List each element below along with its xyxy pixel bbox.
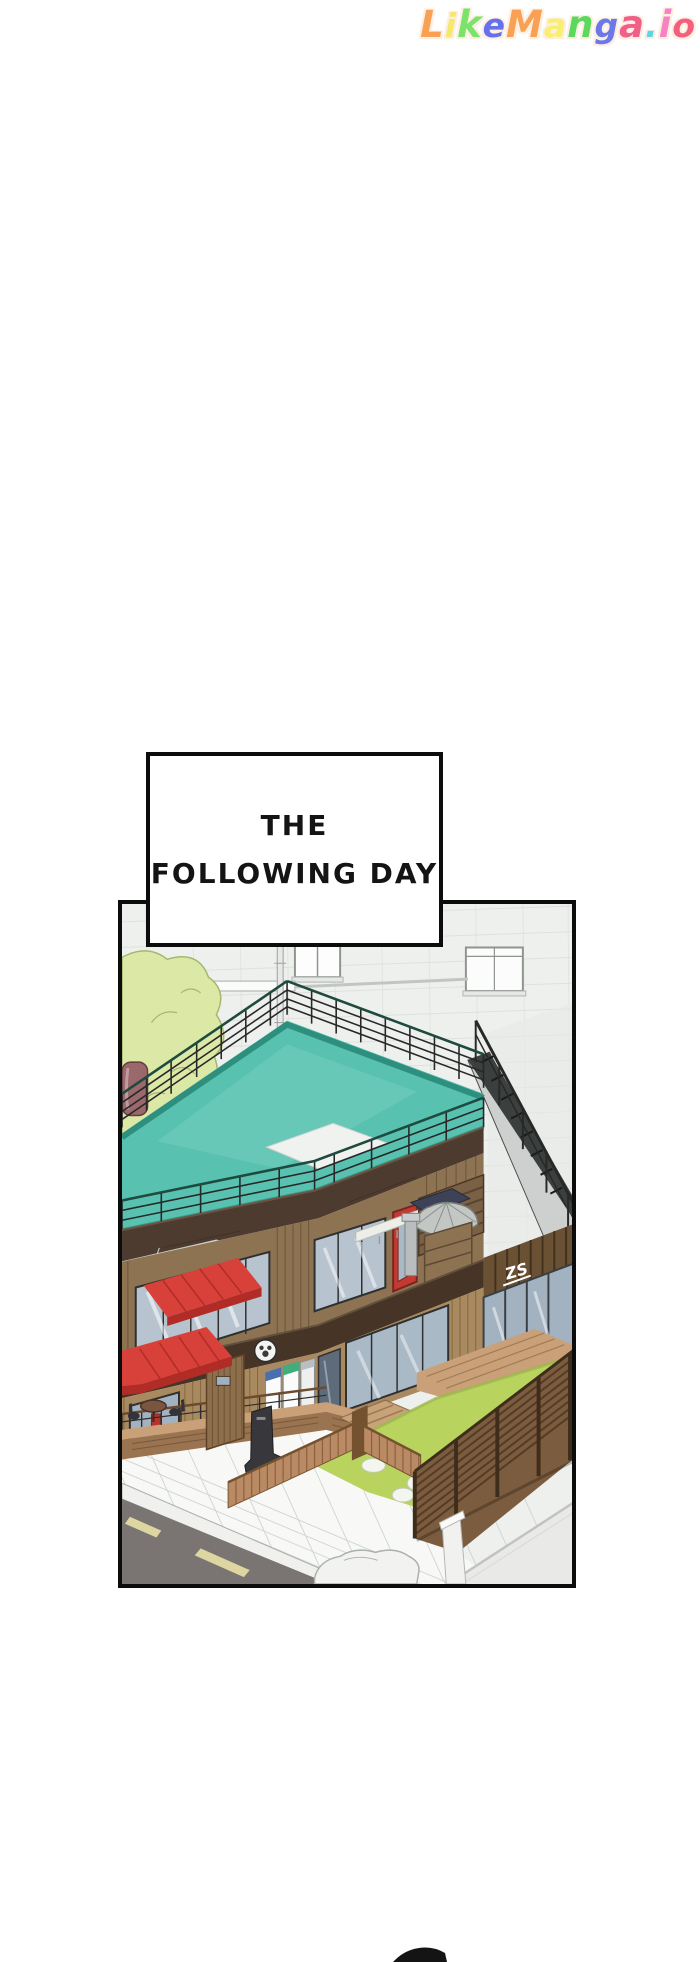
- manga-page: LikeManga.io THE FOLLOWING DAY: [0, 0, 700, 1962]
- site-watermark: LikeManga.io: [420, 2, 696, 50]
- comic-panel: ZS: [118, 900, 576, 1588]
- caption-line-1: THE: [261, 802, 329, 850]
- caption-box: THE FOLLOWING DAY: [146, 752, 443, 947]
- watermark-letter: a: [544, 6, 567, 45]
- watermark-letter: k: [457, 3, 483, 46]
- watermark-letter: .: [645, 6, 659, 45]
- water-tank: [122, 1062, 148, 1115]
- watermark-letter: n: [567, 3, 594, 46]
- wall-window-double: [463, 947, 526, 995]
- chimney-vent: [402, 1213, 420, 1275]
- watermark-letter: o: [672, 6, 696, 45]
- watermark-letter: g: [595, 6, 620, 45]
- watermark-letter: a: [619, 3, 645, 46]
- watermark-letter: i: [445, 6, 457, 45]
- next-panel-fragment: [393, 1946, 449, 1962]
- caption-line-2: FOLLOWING DAY: [151, 850, 438, 898]
- watermark-letter: e: [483, 6, 506, 45]
- cafe-logo: [255, 1340, 277, 1362]
- watermark-letter: L: [420, 3, 445, 46]
- panel-illustration: ZS: [122, 904, 572, 1584]
- watermark-letter: M: [506, 3, 544, 46]
- watermark-letter: i: [659, 3, 673, 46]
